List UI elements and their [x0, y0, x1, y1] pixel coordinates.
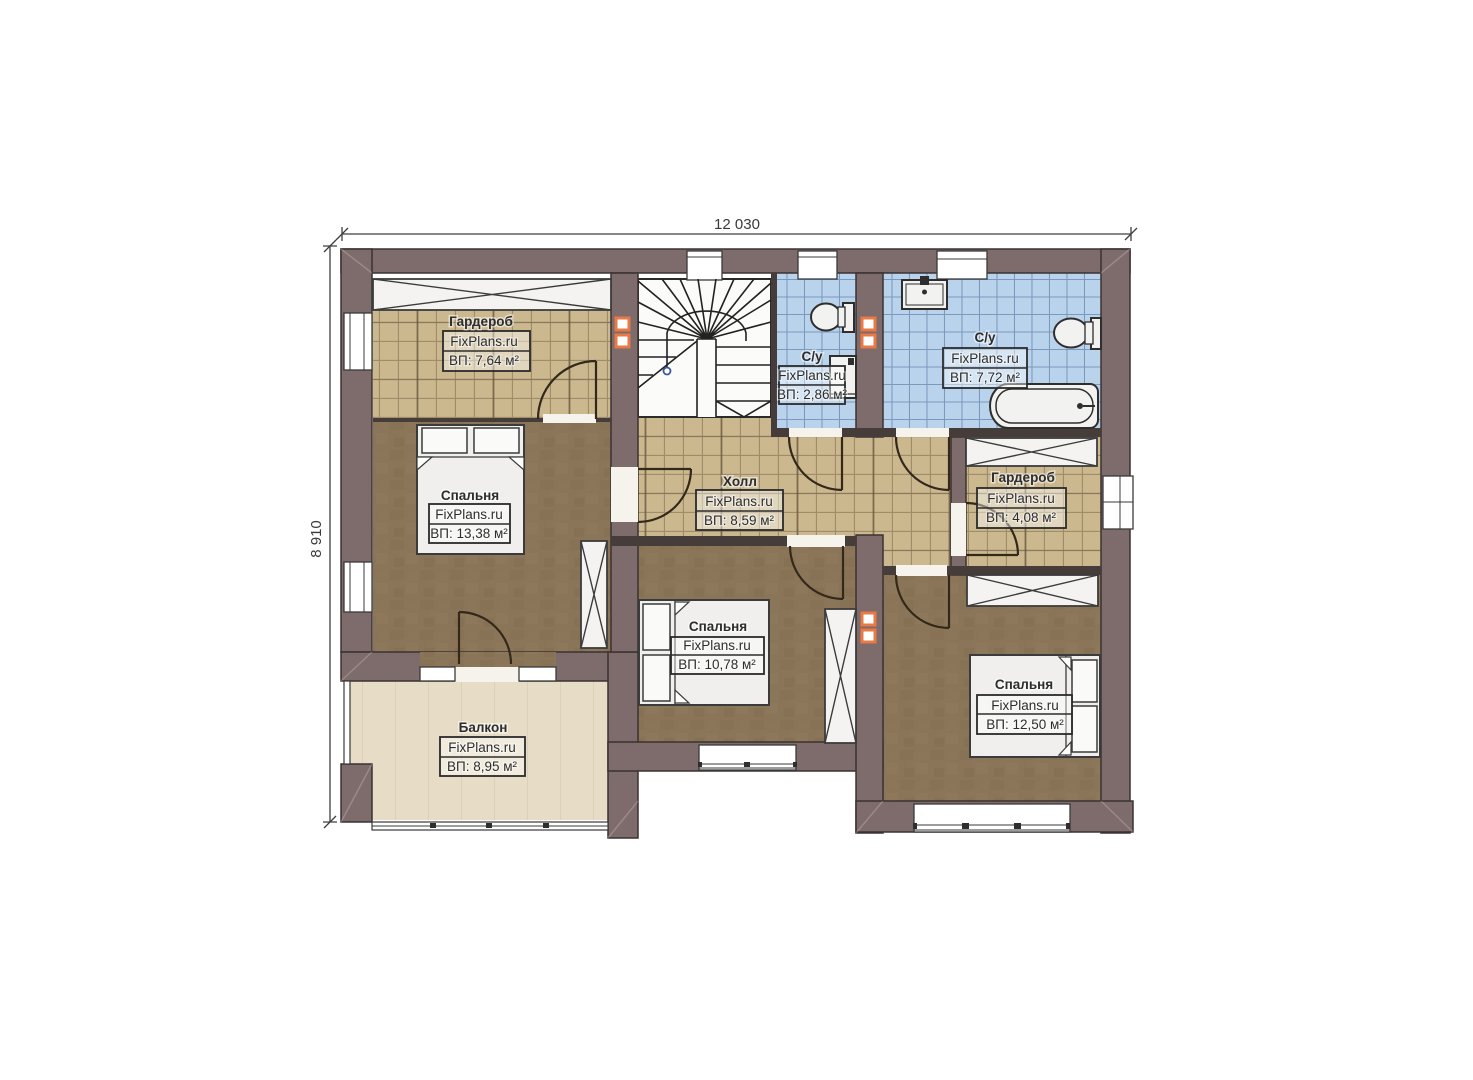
svg-text:ВП: 7,64 м²: ВП: 7,64 м² [449, 353, 520, 368]
svg-text:ВП: 13,38 м²: ВП: 13,38 м² [430, 526, 508, 541]
svg-text:ВП: 8,59 м²: ВП: 8,59 м² [704, 513, 775, 528]
svg-text:С/у: С/у [801, 349, 823, 364]
svg-text:8 910: 8 910 [308, 520, 325, 558]
svg-text:FixPlans.ru: FixPlans.ru [991, 698, 1059, 713]
svg-text:Спальня: Спальня [441, 488, 499, 503]
svg-text:ВП: 12,50 м²: ВП: 12,50 м² [986, 717, 1064, 732]
svg-text:FixPlans.ru: FixPlans.ru [435, 507, 503, 522]
svg-text:12 030: 12 030 [714, 216, 760, 233]
svg-text:Гардероб: Гардероб [991, 470, 1055, 485]
svg-text:ВП: 4,08 м²: ВП: 4,08 м² [986, 510, 1057, 525]
svg-text:Спальня: Спальня [995, 677, 1053, 692]
svg-text:ВП: 10,78 м²: ВП: 10,78 м² [678, 657, 756, 672]
svg-text:FixPlans.ru: FixPlans.ru [778, 368, 846, 383]
svg-text:FixPlans.ru: FixPlans.ru [987, 491, 1055, 506]
svg-text:FixPlans.ru: FixPlans.ru [683, 638, 751, 653]
svg-text:Балкон: Балкон [459, 720, 508, 735]
svg-text:ВП: 8,95 м²: ВП: 8,95 м² [447, 759, 518, 774]
svg-text:FixPlans.ru: FixPlans.ru [705, 494, 773, 509]
svg-text:FixPlans.ru: FixPlans.ru [450, 334, 518, 349]
svg-text:ВП: 7,72 м²: ВП: 7,72 м² [950, 370, 1021, 385]
svg-text:FixPlans.ru: FixPlans.ru [951, 351, 1019, 366]
svg-text:С/у: С/у [974, 330, 996, 345]
svg-text:Холл: Холл [723, 474, 757, 489]
svg-text:ВП: 2,86 м²: ВП: 2,86 м² [777, 387, 848, 402]
svg-text:Спальня: Спальня [689, 619, 747, 634]
svg-text:Гардероб: Гардероб [449, 314, 513, 329]
svg-text:FixPlans.ru: FixPlans.ru [448, 740, 516, 755]
